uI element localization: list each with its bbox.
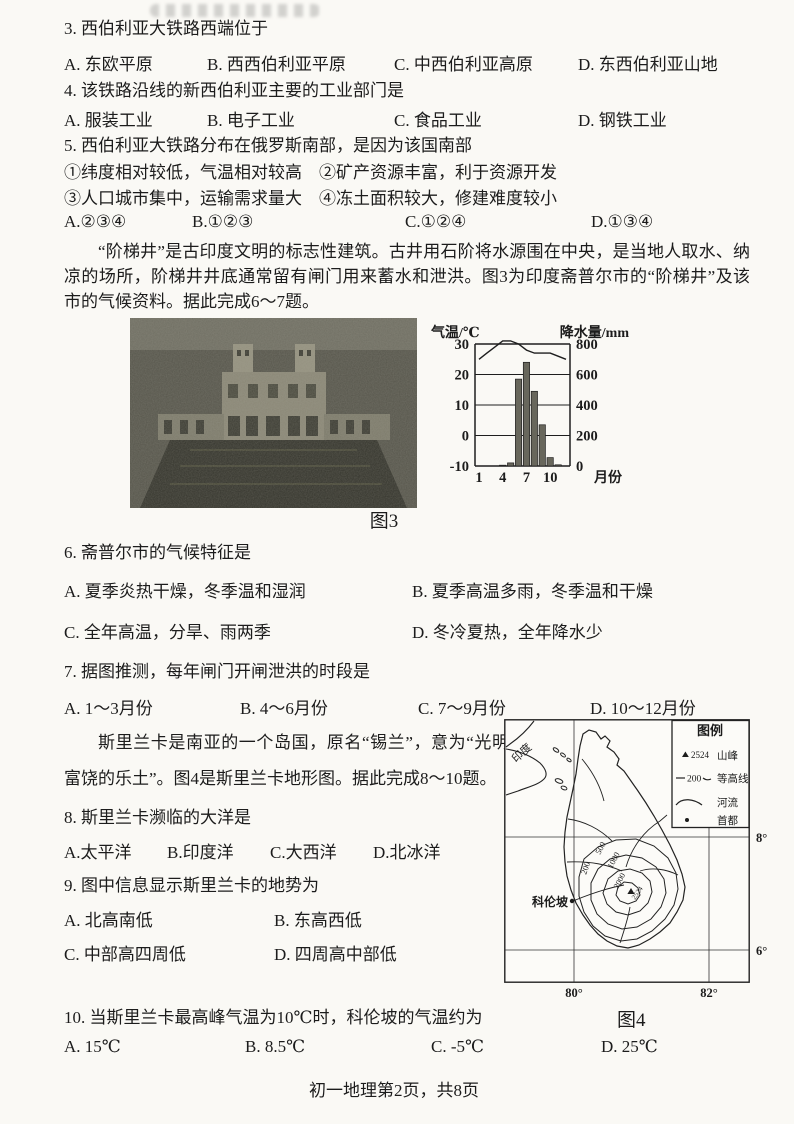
legend-title: 图例 xyxy=(697,723,723,738)
lat-label-8: 8° xyxy=(756,831,767,845)
q9-stem: 9. 图中信息显示斯里兰卡的地势为 xyxy=(64,873,512,898)
q8-options: A.太平洋 B.印度洋 C.大西洋 D.北冰洋 xyxy=(64,838,512,863)
q8-stem: 8. 斯里兰卡濒临的大洋是 xyxy=(64,805,512,830)
climate-chart: 气温/℃降水量/mm3020100-10800600400200014710月份 xyxy=(429,324,631,506)
capital-label: 科伦坡 xyxy=(532,894,569,909)
q9-option-b: B. 东高西低 xyxy=(274,906,362,931)
q7-option-d: D. 10～12月份 xyxy=(590,694,696,719)
q6-options-row1: A. 夏季炎热干燥，冬季温和湿润 B. 夏季高温多雨，冬季温和干燥 xyxy=(64,577,766,602)
q3-option-c: C. 中西伯利亚高原 xyxy=(394,50,533,75)
exam-page: 3. 西伯利亚大铁路西端位于 A. 东欧平原 B. 西西伯利亚平原 C. 中西伯… xyxy=(0,0,794,1124)
q9-options-row2: C. 中部高四周低 D. 四周高中部低 xyxy=(64,940,512,965)
passage-sri-lanka: 斯里兰卡是南亚的一个岛国，原名“锡兰”，意为“光明富饶的乐土”。图4是斯里兰卡地… xyxy=(64,725,509,797)
q4-option-c: C. 食品工业 xyxy=(394,106,482,131)
svg-text:7: 7 xyxy=(523,470,530,486)
q10-option-a: A. 15℃ xyxy=(64,1037,121,1057)
q3-option-a: A. 东欧平原 xyxy=(64,50,153,75)
q6-stem: 6. 斋普尔市的气候特征是 xyxy=(64,540,766,565)
q6-options-row2: C. 全年高温，分旱、雨两季 D. 冬冷夏热，全年降水少 xyxy=(64,618,766,643)
svg-text:0: 0 xyxy=(576,459,583,475)
svg-text:10: 10 xyxy=(543,470,558,486)
q4-option-a: A. 服装工业 xyxy=(64,106,153,131)
map-legend: 图例 2524 山峰 200 等高线 河流 首都 xyxy=(672,721,749,828)
q9-option-c: C. 中部高四周低 xyxy=(64,940,186,965)
svg-text:0: 0 xyxy=(462,429,469,445)
figure4: 印度 xyxy=(504,719,789,1014)
q10-option-d: D. 25℃ xyxy=(601,1037,658,1057)
svg-text:800: 800 xyxy=(576,337,598,353)
q10-option-b: B. 8.5℃ xyxy=(245,1037,305,1057)
legend-peak-label: 山峰 xyxy=(717,750,738,762)
figure3-caption: 图3 xyxy=(104,510,664,534)
q6-option-b: B. 夏季高温多雨，冬季温和干燥 xyxy=(412,577,653,602)
q10-stem: 10. 当斯里兰卡最高峰气温为10℃时，科伦坡的气温约为 xyxy=(64,1008,483,1027)
q8-option-a: A.太平洋 xyxy=(64,838,132,863)
q8-option-c: C.大西洋 xyxy=(270,838,337,863)
lon-label-80: 80° xyxy=(565,986,583,1000)
legend-capital-icon xyxy=(685,818,689,822)
lon-label-82: 82° xyxy=(700,986,718,1000)
q10-options: A. 15℃ B. 8.5℃ C. -5℃ D. 25℃ xyxy=(64,1037,766,1062)
sri-lanka-section: 斯里兰卡是南亚的一个岛国，原名“锡兰”，意为“光明富饶的乐土”。图4是斯里兰卡地… xyxy=(64,725,766,1005)
q6-option-c: C. 全年高温，分旱、雨两季 xyxy=(64,618,271,643)
legend-contour-value: 200 xyxy=(687,775,702,785)
q10-option-c: C. -5℃ xyxy=(431,1037,484,1057)
svg-text:-10: -10 xyxy=(450,459,469,475)
capital-dot xyxy=(570,899,574,903)
svg-text:月份: 月份 xyxy=(593,469,623,486)
q4-options: A. 服装工业 B. 电子工业 C. 食品工业 D. 钢铁工业 xyxy=(64,106,766,131)
stepwell-photo xyxy=(130,318,417,508)
sri-lanka-map: 印度 xyxy=(504,719,789,1009)
q4-option-d: D. 钢铁工业 xyxy=(578,106,667,131)
passage-stepwell: “阶梯井”是古印度文明的标志性建筑。古井用石阶将水源围在中央，是当地人取水、纳凉… xyxy=(64,239,750,314)
lat-label-6: 6° xyxy=(756,944,767,958)
svg-text:10: 10 xyxy=(455,398,470,414)
q5-options: A.②③④ B.①②③ C.①②④ D.①③④ xyxy=(64,212,766,237)
q4-option-b: B. 电子工业 xyxy=(207,106,295,131)
q5-option-b: B.①②③ xyxy=(192,212,253,232)
svg-text:1: 1 xyxy=(475,470,482,486)
figure3: 气温/℃降水量/mm3020100-10800600400200014710月份 xyxy=(64,318,766,508)
q4-stem: 4. 该铁路沿线的新西伯利亚主要的工业部门是 xyxy=(64,78,766,103)
svg-text:600: 600 xyxy=(576,368,598,384)
q7-option-b: B. 4～6月份 xyxy=(240,694,328,719)
legend-contour-label: 等高线 xyxy=(717,772,749,785)
q3-options: A. 东欧平原 B. 西西伯利亚平原 C. 中西伯利亚高原 D. 东西伯利亚山地 xyxy=(64,50,766,75)
q9-option-a: A. 北高南低 xyxy=(64,906,153,931)
svg-text:30: 30 xyxy=(455,337,470,353)
svg-text:200: 200 xyxy=(576,429,598,445)
q9-option-d: D. 四周高中部低 xyxy=(274,940,397,965)
q9-options-row1: A. 北高南低 B. 东高西低 xyxy=(64,906,512,931)
page-footer: 初一地理第2页，共8页 xyxy=(64,1076,724,1101)
q5-items-line1: ①纬度相对较低，气温相对较高 ②矿产资源丰富，利于资源开发 xyxy=(64,160,766,185)
figure4-caption: 图4 xyxy=(617,1005,646,1032)
svg-text:20: 20 xyxy=(455,368,470,384)
q7-option-a: A. 1～3月份 xyxy=(64,694,153,719)
q6-option-a: A. 夏季炎热干燥，冬季温和湿润 xyxy=(64,577,306,602)
q5-option-d: D.①③④ xyxy=(591,212,653,232)
q7-stem: 7. 据图推测，每年闸门开闸泄洪的时段是 xyxy=(64,659,766,684)
legend-peak-value: 2524 xyxy=(691,750,710,760)
legend-river-label: 河流 xyxy=(717,796,738,809)
q7-option-c: C. 7～9月份 xyxy=(418,694,506,719)
q5-items-line2: ③人口城市集中，运输需求量大 ④冻土面积较大，修建难度较小 xyxy=(64,186,766,211)
q3-option-d: D. 东西伯利亚山地 xyxy=(578,50,718,75)
svg-text:4: 4 xyxy=(499,470,506,486)
q10-stem-row: 10. 当斯里兰卡最高峰气温为10℃时，科伦坡的气温约为 图4 xyxy=(64,1005,766,1031)
q6-option-d: D. 冬冷夏热，全年降水少 xyxy=(412,618,603,643)
legend-capital-label: 首都 xyxy=(717,814,738,827)
q5-stem: 5. 西伯利亚大铁路分布在俄罗斯南部，是因为该国南部 xyxy=(64,133,766,158)
svg-text:400: 400 xyxy=(576,398,598,414)
q8-option-d: D.北冰洋 xyxy=(373,838,441,863)
q3-stem: 3. 西伯利亚大铁路西端位于 xyxy=(64,16,766,41)
q3-option-b: B. 西西伯利亚平原 xyxy=(207,50,346,75)
q5-option-c: C.①②④ xyxy=(405,212,466,232)
q8-option-b: B.印度洋 xyxy=(167,838,234,863)
q5-option-a: A.②③④ xyxy=(64,212,126,232)
q7-options: A. 1～3月份 B. 4～6月份 C. 7～9月份 D. 10～12月份 xyxy=(64,694,766,719)
